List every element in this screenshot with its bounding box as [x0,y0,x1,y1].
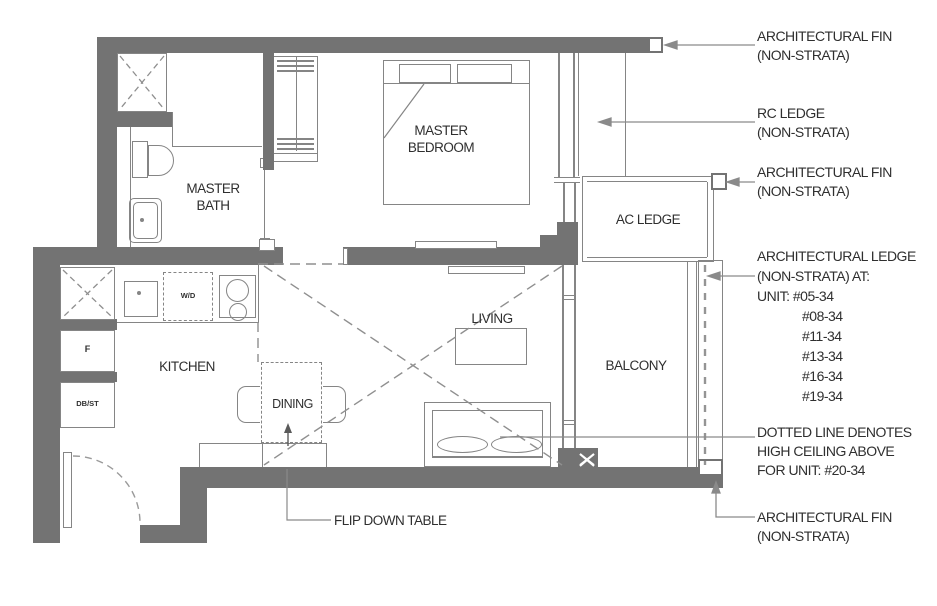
flip-table-leader [287,469,331,520]
dining-arrow-icon [284,423,292,446]
door-swing-arc [73,456,140,524]
floor-trap-x [576,450,598,469]
room-label-living: LIVING [464,310,520,327]
callout-leaders [500,41,755,517]
flip-down-table-label: FLIP DOWN TABLE [334,512,447,529]
room-label-master-bedroom: MASTER BEDROOM [385,122,497,156]
shaft-x-mark [63,56,164,317]
linework-layer [0,0,937,606]
room-label-dining: DINING [265,396,320,413]
room-label-kitchen: KITCHEN [150,358,224,375]
room-label-ac-ledge: AC LEDGE [606,211,690,228]
room-label-master-bath: MASTER BATH [165,180,261,214]
room-label-balcony: BALCONY [596,357,676,374]
high-ceiling-dashed-x [258,264,562,465]
floor-plan: W/D F DB/ST [0,0,937,606]
